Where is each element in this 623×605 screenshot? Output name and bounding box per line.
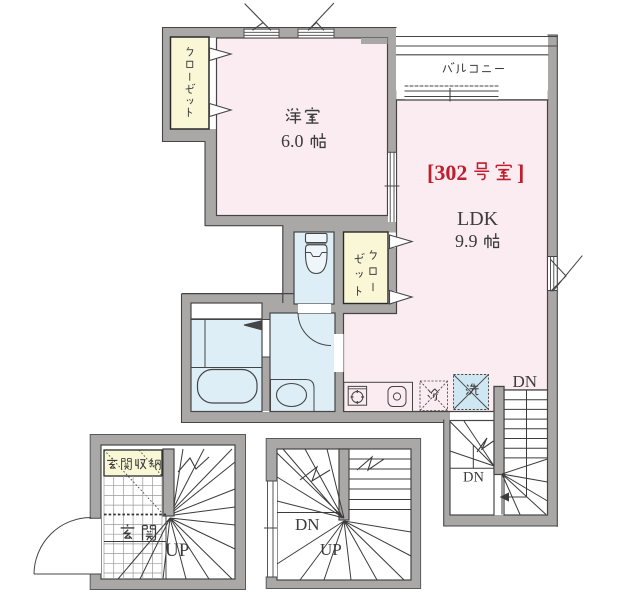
- svg-text:DN: DN: [295, 515, 320, 534]
- svg-text:DN: DN: [463, 470, 484, 486]
- svg-text:LDK: LDK: [457, 208, 499, 230]
- svg-text:DN: DN: [513, 372, 538, 391]
- svg-text:[302: [302: [427, 160, 467, 185]
- svg-text:UP: UP: [165, 540, 189, 561]
- svg-text:9.9: 9.9: [455, 231, 478, 251]
- svg-text:6.0: 6.0: [281, 131, 304, 151]
- svg-text:]: ]: [517, 160, 524, 185]
- svg-text:UP: UP: [320, 540, 342, 559]
